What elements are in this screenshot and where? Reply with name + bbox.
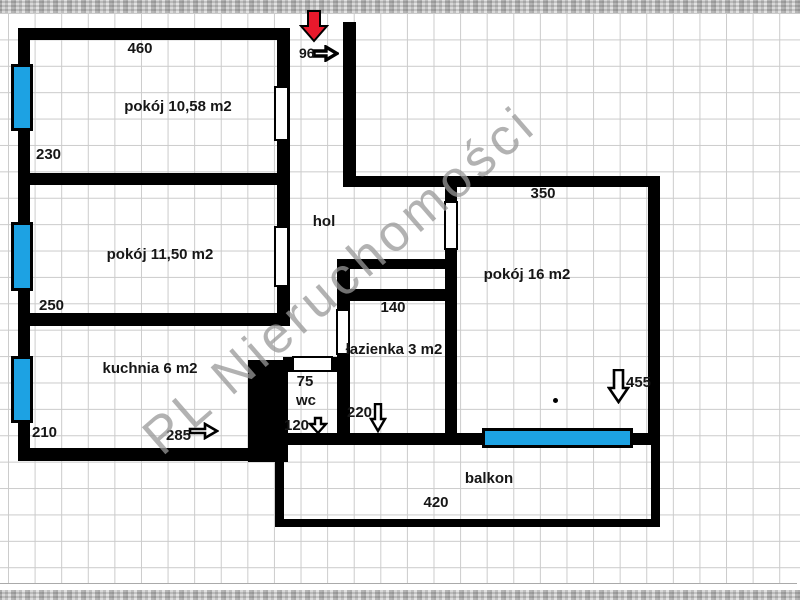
entrance-arrow-icon <box>299 10 329 43</box>
dim-label-420: 420 <box>423 494 448 512</box>
grid-bottom-edge <box>0 583 797 584</box>
dim-label-96: 96 <box>299 44 315 62</box>
dim-label-220: 220 <box>347 404 372 422</box>
dim-label-140: 140 <box>380 299 405 317</box>
bottom-noise-strip <box>0 590 800 600</box>
room-label-pokoj2: pokój 11,50 m2 <box>107 246 214 264</box>
window-balkon <box>482 428 633 448</box>
entrance-direction-arrow-icon <box>312 45 339 62</box>
kuchnia-width-arrow-icon <box>188 422 219 440</box>
room-label-hol: hol <box>313 213 336 231</box>
window-pokoj1 <box>11 64 33 131</box>
dim-label-210: 210 <box>32 424 57 442</box>
wall-closet-top <box>337 259 457 269</box>
wall-entry-right <box>343 22 356 187</box>
dim-label-250: 250 <box>39 297 64 315</box>
wall-room1-room2 <box>18 173 290 185</box>
wall-balkon-left <box>275 445 284 527</box>
door-pokoj2 <box>274 226 289 287</box>
window-kuchnia <box>11 356 33 423</box>
dim-label-230: 230 <box>36 146 61 164</box>
top-noise-strip <box>0 0 800 13</box>
wall-top <box>18 28 290 40</box>
wall-kitchen-bottom <box>18 448 260 461</box>
wall-balkon-right <box>651 445 660 527</box>
room-label-pokoj1: pokój 10,58 m2 <box>124 98 232 116</box>
room-label-wc: wc <box>296 392 316 410</box>
dim-label-460: 460 <box>127 40 152 58</box>
room-label-pokoj3: pokój 16 m2 <box>484 266 571 284</box>
wc-height-arrow-icon <box>308 416 328 435</box>
room-label-kuchnia: kuchnia 6 m2 <box>102 360 197 378</box>
dim-label-455: 455 <box>626 374 651 392</box>
room-label-lazienka: łazienka 3 m2 <box>346 341 443 359</box>
door-wc <box>292 356 333 372</box>
plan-dot-mark <box>553 398 558 403</box>
window-pokoj2 <box>11 222 33 291</box>
dim-label-350: 350 <box>530 185 555 203</box>
dim-label-120: 120 <box>284 417 309 435</box>
room-label-balkon: balkon <box>465 470 513 488</box>
floorplan-canvas: pokój 10,58 m2 pokój 11,50 m2 pokój 16 m… <box>0 0 800 600</box>
dim-label-75: 75 <box>297 373 314 391</box>
door-pokoj1 <box>274 86 289 141</box>
wall-right <box>648 176 660 445</box>
door-pokoj3 <box>444 201 458 250</box>
wall-hol-top <box>343 176 660 187</box>
dim-label-285: 285 <box>166 427 191 445</box>
wall-balkon-bottom <box>275 519 660 527</box>
